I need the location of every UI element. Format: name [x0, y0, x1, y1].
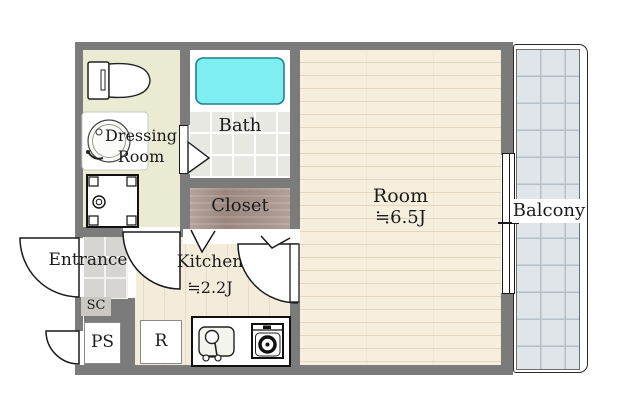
- wall-bath-closet: [180, 178, 300, 188]
- pipe-space-box: PS: [84, 322, 121, 364]
- dressing-room-label: Dressing Room: [94, 125, 188, 167]
- doorway-closet-room: [183, 229, 299, 244]
- shoe-closet-label: SC: [87, 299, 106, 314]
- doorway-service: [75, 331, 84, 365]
- bath-tub-area: [190, 50, 290, 112]
- wall-right-upper: [501, 42, 513, 155]
- room-label: Room ≒6.5J: [350, 185, 451, 229]
- refrigerator-box: R: [140, 320, 182, 364]
- wall-right-lower: [501, 293, 513, 370]
- floor-plan: SC PS R Entrance Dressing Room Bath Clos…: [0, 0, 623, 417]
- room-name-label: Room: [350, 185, 451, 207]
- wall-bath-room: [290, 42, 300, 229]
- bath-label: Bath: [200, 116, 280, 137]
- dressing-room-label-line2: Room: [94, 146, 188, 167]
- wall-bottom: [75, 365, 513, 375]
- room-size-label: ≒6.5J: [350, 207, 451, 229]
- doorway-dressing: [123, 227, 180, 237]
- pipe-space-label: PS: [91, 333, 114, 353]
- balcony-label: Balcony: [513, 201, 585, 222]
- balcony-label-chip: Balcony: [512, 199, 586, 223]
- wall-dressing-entrance: [75, 227, 123, 237]
- wall-left-upper: [75, 42, 83, 238]
- entrance-label: Entrance: [42, 251, 134, 271]
- kitchen-size-label: ≒2.2J: [158, 275, 262, 300]
- shoe-closet-box: SC: [81, 297, 111, 316]
- wall-kitchen-room: [290, 302, 300, 365]
- room-door-panel: [290, 244, 299, 302]
- dressing-room-label-line1: Dressing: [94, 125, 188, 146]
- kitchen-label: Kitchen ≒2.2J: [158, 250, 262, 300]
- closet-label: Closet: [193, 196, 287, 217]
- wall-dressing-bath-upper: [180, 42, 190, 125]
- refrigerator-label: R: [155, 332, 168, 352]
- kitchen-name-label: Kitchen: [158, 250, 262, 275]
